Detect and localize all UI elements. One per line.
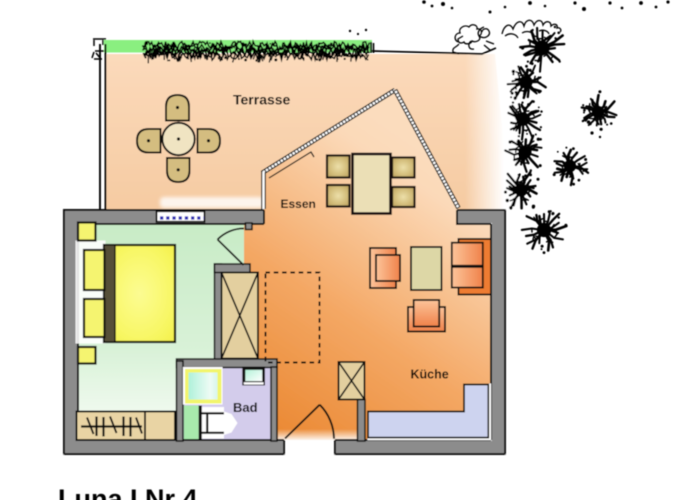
svg-text:Bad: Bad <box>233 400 258 415</box>
svg-text:Essen: Essen <box>281 197 316 211</box>
svg-text:Terrasse: Terrasse <box>233 92 291 108</box>
svg-text:Luna I Nr 4: Luna I Nr 4 <box>58 484 198 500</box>
svg-text:Küche: Küche <box>411 368 449 382</box>
